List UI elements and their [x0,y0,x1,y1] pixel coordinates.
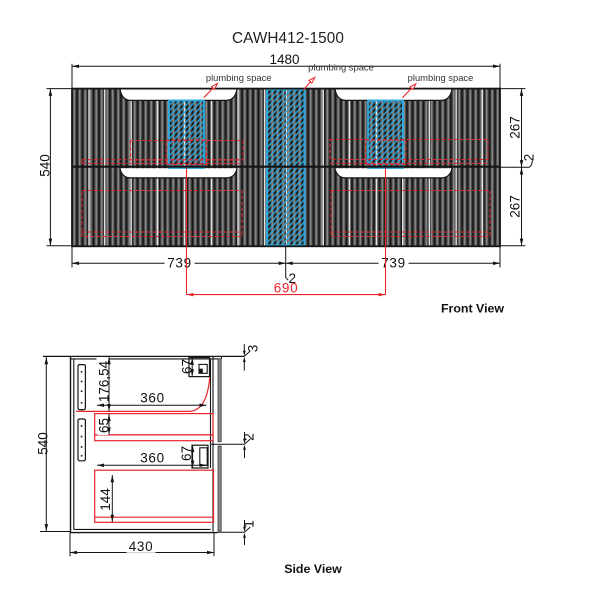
svg-text:360: 360 [140,391,165,406]
svg-text:360: 360 [140,450,165,465]
svg-text:144: 144 [98,488,113,511]
svg-text:plumbing space: plumbing space [408,72,474,83]
svg-text:plumbing space: plumbing space [206,72,272,83]
svg-text:540: 540 [38,154,53,177]
svg-text:739: 739 [381,255,406,270]
svg-text:67: 67 [179,359,194,374]
svg-text:690: 690 [274,281,299,296]
svg-text:1480: 1480 [269,52,299,67]
svg-text:3: 3 [246,345,261,353]
svg-text:267: 267 [508,195,523,218]
svg-text:plumbing space: plumbing space [308,62,374,73]
svg-text:176,54: 176,54 [96,360,111,402]
svg-text:65: 65 [96,418,111,433]
svg-text:67: 67 [179,446,194,461]
svg-text:267: 267 [508,116,523,139]
svg-text:540: 540 [36,432,51,455]
svg-text:Side View: Side View [284,562,342,576]
svg-text:Front View: Front View [441,301,504,315]
svg-text:2: 2 [522,154,537,162]
svg-text:1: 1 [242,520,257,528]
svg-text:CAWH412-1500: CAWH412-1500 [232,30,344,47]
svg-text:430: 430 [129,539,154,554]
svg-text:739: 739 [167,255,192,270]
svg-text:2: 2 [241,433,256,441]
